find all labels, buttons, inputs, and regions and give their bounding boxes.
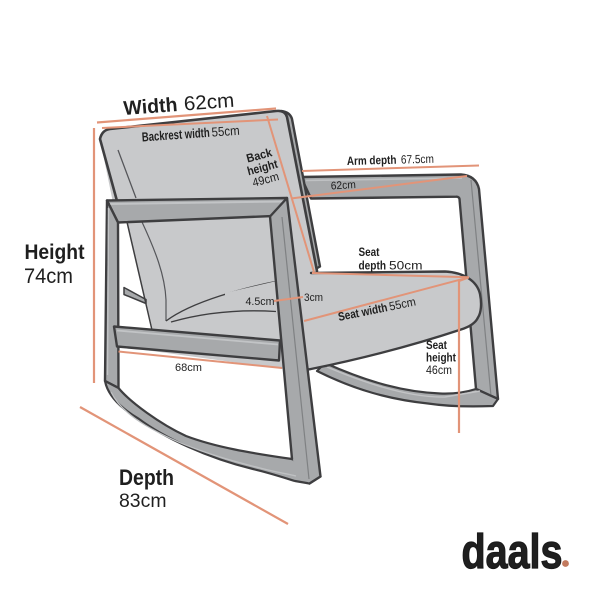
svg-text:83cm: 83cm [119,490,167,512]
svg-text:Height: Height [25,240,85,264]
svg-text:74cm: 74cm [24,265,73,288]
svg-text:depth: depth [359,259,387,273]
svg-text:62cm: 62cm [330,179,356,192]
svg-text:Arm depth: Arm depth [347,153,397,168]
svg-text:67.5cm: 67.5cm [401,152,434,167]
svg-text:Seat: Seat [359,245,380,259]
svg-text:50cm: 50cm [389,259,423,273]
svg-text:62cm: 62cm [183,90,235,116]
svg-text:68cm: 68cm [175,362,202,374]
svg-text:46cm: 46cm [426,363,452,377]
svg-text:55cm: 55cm [211,123,240,140]
svg-text:3cm: 3cm [304,292,323,304]
svg-text:Width: Width [123,94,178,120]
svg-text:4.5cm: 4.5cm [246,296,275,308]
svg-text:daals: daals [462,526,563,579]
svg-text:Depth: Depth [119,465,174,490]
